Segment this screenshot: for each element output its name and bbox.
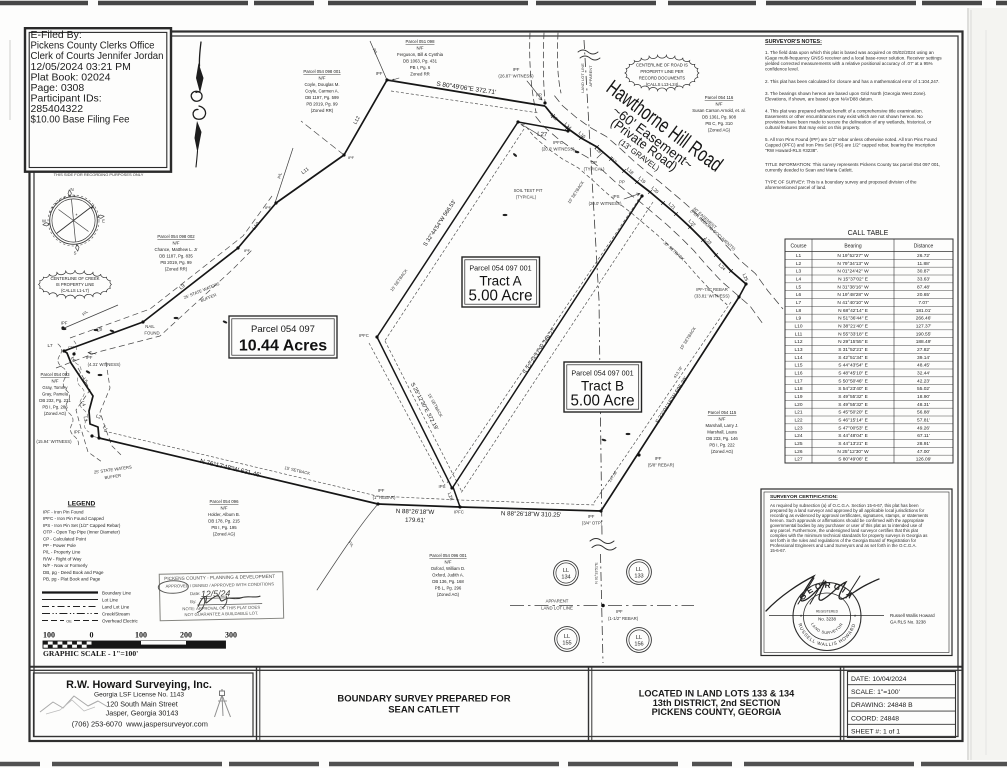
svg-text:FOUND: FOUND bbox=[144, 331, 159, 336]
svg-text:Elevations, if shown, are base: Elevations, if shown, are based upon NAV… bbox=[765, 97, 873, 102]
svg-text:PICKENS COUNTY, GEORGIA: PICKENS COUNTY, GEORGIA bbox=[652, 707, 782, 717]
svg-text:DB 178, Pg. 215: DB 178, Pg. 215 bbox=[208, 519, 240, 524]
svg-text:S 80°49'06" E: S 80°49'06" E bbox=[838, 457, 868, 463]
svg-text:Creek/Stream: Creek/Stream bbox=[102, 612, 130, 617]
svg-text:PB C, Pg. 310: PB C, Pg. 310 bbox=[705, 121, 733, 126]
svg-text:*: * bbox=[76, 214, 78, 220]
svg-text:L19: L19 bbox=[794, 394, 802, 400]
svg-text:R.W. Howard Surveying, Inc.: R.W. Howard Surveying, Inc. bbox=[66, 679, 212, 691]
svg-text:48.45': 48.45' bbox=[917, 363, 930, 369]
svg-text:Parcel 054 098 001: Parcel 054 098 001 bbox=[303, 69, 341, 74]
svg-text:S 44°48'04" E: S 44°48'04" E bbox=[838, 433, 868, 439]
svg-text:SCALE: 1"=100': SCALE: 1"=100' bbox=[851, 689, 900, 696]
svg-text:N 51°36'44" E: N 51°36'44" E bbox=[838, 316, 868, 322]
svg-text:(CALLS L1-L7): (CALLS L1-L7) bbox=[61, 288, 90, 293]
svg-text:179.61': 179.61' bbox=[405, 517, 425, 525]
svg-text:L7: L7 bbox=[47, 343, 53, 348]
svg-text:LAND LOT LINE: LAND LOT LINE bbox=[580, 63, 585, 93]
svg-text:N 88°26'18"W: N 88°26'18"W bbox=[396, 508, 435, 516]
svg-text:39.14': 39.14' bbox=[917, 355, 930, 361]
svg-text:Tract B: Tract B bbox=[581, 379, 624, 394]
svg-text:156: 156 bbox=[634, 642, 643, 648]
svg-text:L6: L6 bbox=[796, 292, 802, 298]
svg-text:L2: L2 bbox=[95, 413, 102, 420]
svg-text:N 41°40'10" W: N 41°40'10" W bbox=[837, 300, 869, 306]
svg-text:L12: L12 bbox=[794, 339, 802, 345]
svg-text:N 25°12'30" W: N 25°12'30" W bbox=[837, 449, 869, 455]
svg-text:THIS SIDE FOR RECORDING PURPOS: THIS SIDE FOR RECORDING PURPOSES ONLY bbox=[54, 172, 144, 177]
svg-text:PP - Power Pole: PP - Power Pole bbox=[43, 543, 76, 548]
svg-text:RECORD DOCUMENTS: RECORD DOCUMENTS bbox=[639, 76, 686, 81]
svg-text:Zoned RR: Zoned RR bbox=[410, 72, 430, 77]
svg-text:L11: L11 bbox=[795, 331, 803, 337]
svg-text:87.48': 87.48' bbox=[917, 284, 930, 290]
svg-text:Chance, Matthew L. Jr: Chance, Matthew L. Jr bbox=[155, 247, 199, 252]
svg-text:DB 1063, Pg. 431: DB 1063, Pg. 431 bbox=[403, 59, 438, 64]
svg-text:Coyle, Douglas M.: Coyle, Douglas M. bbox=[304, 82, 339, 87]
svg-text:5.00 Acre: 5.00 Acre bbox=[469, 288, 533, 305]
svg-text:Tract A: Tract A bbox=[479, 274, 521, 289]
svg-text:L3: L3 bbox=[796, 269, 802, 275]
svg-text:55.02': 55.02' bbox=[917, 386, 930, 392]
svg-text:N 88°26'18"W 310.25': N 88°26'18"W 310.25' bbox=[501, 510, 562, 519]
svg-text:IPF: IPF bbox=[616, 609, 623, 614]
svg-text:30' SETBACK: 30' SETBACK bbox=[663, 240, 686, 261]
svg-text:42.23': 42.23' bbox=[917, 378, 930, 384]
svg-text:DB 232, Pg. 231: DB 232, Pg. 231 bbox=[39, 398, 71, 403]
svg-text:IPF: IPF bbox=[588, 514, 595, 519]
svg-text:7.07': 7.07' bbox=[918, 300, 928, 306]
svg-text:5.00 Acre: 5.00 Acre bbox=[571, 393, 635, 410]
svg-text:IPS: IPS bbox=[613, 194, 620, 199]
svg-text:L23: L23 bbox=[704, 236, 713, 245]
svg-text:PB I, Pg. 222: PB I, Pg. 222 bbox=[709, 443, 735, 448]
svg-text:(TYPICAL): (TYPICAL) bbox=[516, 195, 537, 200]
svg-text:(Zoned RR): (Zoned RR) bbox=[311, 108, 334, 113]
svg-text:IPF: IPF bbox=[655, 456, 662, 461]
svg-text:N 79°34'13" W: N 79°34'13" W bbox=[837, 261, 869, 267]
svg-text:Parcel 054 096 001: Parcel 054 096 001 bbox=[429, 553, 467, 558]
svg-text:S 49°55'32" E: S 49°55'32" E bbox=[838, 394, 868, 400]
svg-text:(Zoned AG): (Zoned AG) bbox=[437, 592, 460, 597]
svg-text:10.44 Acres: 10.44 Acres bbox=[239, 338, 327, 355]
svg-text:SOIL TEST PIT: SOIL TEST PIT bbox=[514, 188, 543, 193]
svg-text:P/L: P/L bbox=[347, 540, 355, 548]
svg-text:S 49°55'32" E: S 49°55'32" E bbox=[838, 402, 868, 408]
svg-text:300: 300 bbox=[225, 631, 237, 640]
svg-text:TYPE OF SURVEY: This is a bou: TYPE OF SURVEY: This is a boundary surve… bbox=[765, 180, 917, 185]
svg-text:PB L, Pg. 296: PB L, Pg. 296 bbox=[435, 586, 462, 591]
svg-text:S 45°50'20" E: S 45°50'20" E bbox=[838, 410, 868, 416]
svg-text:N 19°48'28" W: N 19°48'28" W bbox=[837, 292, 869, 298]
svg-text:L13: L13 bbox=[794, 347, 802, 353]
svg-text:S 31°52'21" E: S 31°52'21" E bbox=[838, 347, 868, 353]
svg-text:COORD: 24848: COORD: 24848 bbox=[851, 715, 899, 722]
svg-text:(Zoned RR): (Zoned RR) bbox=[165, 267, 188, 272]
svg-text:L8: L8 bbox=[796, 308, 802, 314]
svg-text:LAND LOT LINE: LAND LOT LINE bbox=[541, 606, 573, 611]
svg-text:E: E bbox=[102, 219, 105, 224]
svg-text:L22: L22 bbox=[794, 418, 802, 424]
svg-text:R/W - Right of Way: R/W - Right of Way bbox=[43, 556, 82, 561]
svg-text:PB 2019, Pg. 99: PB 2019, Pg. 99 bbox=[306, 102, 338, 107]
svg-text:56.88': 56.88' bbox=[917, 410, 930, 416]
svg-text:IPF: IPF bbox=[348, 155, 355, 160]
svg-text:IPF - Iron Pin Found: IPF - Iron Pin Found bbox=[43, 510, 84, 515]
svg-text:Parcel 051 098: Parcel 051 098 bbox=[406, 39, 436, 44]
svg-text:Jasper, Georgia 30143: Jasper, Georgia 30143 bbox=[106, 709, 179, 718]
svg-text:12/5/24: 12/5/24 bbox=[201, 588, 231, 599]
svg-text:2. This plat has been calculat: 2. This plat has been calculated for clo… bbox=[765, 79, 940, 84]
svg-text:L4: L4 bbox=[796, 277, 802, 283]
svg-text:NAIL: NAIL bbox=[145, 324, 155, 329]
svg-text:N/F - Now or Formerly: N/F - Now or Formerly bbox=[43, 563, 88, 568]
svg-text:120 South Main Street: 120 South Main Street bbox=[106, 700, 178, 709]
svg-text:GRAPHIC SCALE - 1"=100': GRAPHIC SCALE - 1"=100' bbox=[43, 649, 138, 658]
svg-text:PP: PP bbox=[536, 93, 542, 98]
svg-text:L3: L3 bbox=[83, 416, 88, 422]
svg-text:IPF: IPF bbox=[86, 355, 93, 360]
svg-text:P/L: P/L bbox=[81, 309, 89, 317]
svg-text:L26: L26 bbox=[794, 449, 802, 455]
svg-text:(5/8" REBAR): (5/8" REBAR) bbox=[648, 463, 675, 468]
svg-text:S 50°50'46" E: S 50°50'46" E bbox=[838, 378, 868, 384]
svg-text:S 46°15'14" E: S 46°15'14" E bbox=[838, 418, 868, 424]
svg-text:IPF: IPF bbox=[513, 67, 520, 72]
svg-text:Parcel 054 097 001: Parcel 054 097 001 bbox=[571, 369, 633, 378]
svg-text:L17: L17 bbox=[794, 378, 802, 384]
svg-text:L15: L15 bbox=[578, 130, 587, 139]
svg-text:(TYPICAL): (TYPICAL) bbox=[584, 167, 605, 172]
svg-text:provisions have been made to s: provisions have been made to secure the … bbox=[765, 120, 932, 125]
svg-text:Easements or other encumbrance: Easements or other encumbrances may exis… bbox=[765, 114, 923, 119]
svg-text:PB I, Pg. 6: PB I, Pg. 6 bbox=[410, 65, 431, 70]
svg-text:By:: By: bbox=[190, 599, 196, 604]
svg-text:N: N bbox=[70, 187, 73, 192]
svg-text:L10: L10 bbox=[794, 324, 802, 330]
svg-text:cultural features that may exi: cultural features that may exist on this… bbox=[765, 125, 860, 130]
svg-text:5. All Iron Pins Found (IPF) a: 5. All Iron Pins Found (IPF) are 1/2" re… bbox=[765, 137, 937, 142]
svg-text:Professional Engineers and Lan: Professional Engineers and Land Surveyor… bbox=[770, 543, 917, 548]
svg-text:181.01': 181.01' bbox=[916, 308, 932, 314]
svg-text:(1-1/2" REBAR): (1-1/2" REBAR) bbox=[608, 616, 639, 621]
svg-text:confidence level.: confidence level. bbox=[765, 67, 799, 72]
svg-text:IPFC: IPFC bbox=[553, 140, 563, 145]
svg-text:N 38°21'40" E: N 38°21'40" E bbox=[838, 324, 868, 330]
svg-text:3. The bearings shown hereon a: 3. The bearings shown hereon are based u… bbox=[765, 91, 926, 96]
svg-text:SURVEYOR'S NOTES:: SURVEYOR'S NOTES: bbox=[765, 39, 822, 45]
svg-text:L11: L11 bbox=[300, 166, 310, 176]
svg-text:L23: L23 bbox=[794, 425, 802, 431]
svg-text:413.78': 413.78' bbox=[672, 365, 683, 379]
svg-text:(20.0' WITNESS): (20.0' WITNESS) bbox=[589, 201, 622, 206]
svg-text:IPF: IPF bbox=[376, 71, 383, 76]
svg-text:LL: LL bbox=[636, 567, 642, 573]
svg-text:PB 2019, Pg. 99: PB 2019, Pg. 99 bbox=[160, 260, 192, 265]
svg-text:27.82': 27.82' bbox=[917, 347, 930, 353]
svg-text:DB 233, Pg. 146: DB 233, Pg. 146 bbox=[706, 436, 738, 441]
svg-text:190.55': 190.55' bbox=[916, 331, 932, 337]
svg-text:67.11': 67.11' bbox=[917, 433, 930, 439]
svg-text:133: 133 bbox=[634, 574, 643, 580]
svg-text:L12: L12 bbox=[353, 115, 362, 125]
svg-text:(26.87' WITNESS): (26.87' WITNESS) bbox=[498, 74, 534, 79]
svg-text:CALL TABLE: CALL TABLE bbox=[848, 230, 889, 237]
svg-text:Holder, Album B.: Holder, Album B. bbox=[208, 512, 240, 517]
svg-text:Distance: Distance bbox=[914, 244, 934, 250]
svg-text:CP: CP bbox=[591, 160, 597, 165]
svg-text:CENTERLINE OF CREEK: CENTERLINE OF CREEK bbox=[50, 276, 99, 281]
svg-text:N/F: N/F bbox=[173, 241, 180, 246]
svg-text:L21: L21 bbox=[794, 410, 802, 416]
svg-text:L16: L16 bbox=[594, 145, 603, 154]
svg-text:N/F: N/F bbox=[221, 506, 228, 511]
svg-text:L1: L1 bbox=[102, 425, 109, 432]
svg-text:N 55°33'18" E: N 55°33'18" E bbox=[838, 331, 868, 337]
svg-text:OE: OE bbox=[66, 620, 72, 624]
svg-text:IPF: IPF bbox=[74, 430, 81, 435]
svg-text:L2: L2 bbox=[796, 261, 802, 267]
svg-text:N/F: N/F bbox=[319, 76, 326, 81]
svg-text:Gray, Pamela: Gray, Pamela bbox=[42, 392, 69, 397]
svg-text:P/L - Property Line: P/L - Property Line bbox=[43, 550, 81, 555]
svg-text:15' SETBACK: 15' SETBACK bbox=[679, 326, 697, 351]
svg-text:15-6-67.: 15-6-67. bbox=[770, 548, 786, 553]
svg-text:L7: L7 bbox=[796, 300, 802, 306]
svg-text:Parcel 054 097 001: Parcel 054 097 001 bbox=[469, 264, 531, 273]
svg-text:L20: L20 bbox=[794, 402, 802, 408]
svg-text:IPF: IPF bbox=[244, 248, 251, 253]
svg-text:DB 1187, Pg. 835: DB 1187, Pg. 835 bbox=[159, 254, 193, 259]
svg-text:N 29°15'55" E: N 29°15'55" E bbox=[838, 339, 868, 345]
svg-text:(706) 253-6070: (706) 253-6070 bbox=[72, 720, 123, 729]
svg-text:L1: L1 bbox=[796, 253, 802, 259]
svg-text:15' SETBACK: 15' SETBACK bbox=[284, 465, 311, 476]
svg-text:www.jaspersurveyor.com: www.jaspersurveyor.com bbox=[125, 720, 208, 729]
svg-text:Boundary Line: Boundary Line bbox=[102, 591, 132, 596]
svg-text:REGISTERED: REGISTERED bbox=[816, 610, 839, 614]
svg-text:(CALLS L13-L24): (CALLS L13-L24) bbox=[646, 82, 679, 87]
svg-text:SURVEYOR CERTIFICATION:: SURVEYOR CERTIFICATION: bbox=[770, 494, 838, 500]
svg-text:IPFC: IPFC bbox=[359, 333, 369, 338]
svg-text:L24: L24 bbox=[794, 433, 802, 439]
svg-text:28.91': 28.91' bbox=[917, 441, 930, 447]
svg-text:Date:: Date: bbox=[190, 591, 201, 596]
svg-text:P/L: P/L bbox=[372, 47, 380, 55]
svg-text:Marshall, Laura: Marshall, Laura bbox=[707, 430, 737, 435]
svg-text:Marshall, Larry J.: Marshall, Larry J. bbox=[706, 423, 739, 428]
svg-text:Parcel 054 098 002: Parcel 054 098 002 bbox=[157, 234, 195, 239]
svg-text:BOUNDARY SURVEY PREPARED FOR: BOUNDARY SURVEY PREPARED FOR bbox=[337, 694, 510, 705]
svg-text:Lot Line: Lot Line bbox=[102, 598, 119, 603]
svg-text:4. This plat was prepared with: 4. This plat was prepared without benefi… bbox=[765, 109, 923, 114]
svg-text:Coyle, Carmen A.: Coyle, Carmen A. bbox=[305, 89, 339, 94]
svg-text:DB, pg - Deed Book and Page: DB, pg - Deed Book and Page bbox=[43, 570, 104, 575]
svg-text:L18: L18 bbox=[794, 386, 802, 392]
svg-text:26.72': 26.72' bbox=[917, 253, 930, 259]
svg-text:(4.31' WITNESS): (4.31' WITNESS) bbox=[88, 362, 121, 367]
svg-text:N/F: N/F bbox=[52, 379, 59, 384]
svg-text:57.81': 57.81' bbox=[917, 418, 930, 424]
svg-text:PP: PP bbox=[619, 180, 625, 185]
svg-text:PB I, Pg. 286: PB I, Pg. 286 bbox=[42, 405, 68, 410]
svg-text:LL: LL bbox=[564, 634, 570, 640]
svg-text:N/F: N/F bbox=[716, 102, 723, 107]
svg-text:"RW Howard-RLS #3238".: "RW Howard-RLS #3238". bbox=[765, 148, 818, 153]
svg-text:200: 200 bbox=[180, 631, 192, 640]
svg-text:S: S bbox=[74, 251, 77, 256]
svg-text:IPS - Iron Pin Set (1/2" Cappe: IPS - Iron Pin Set (1/2" Capped Rebar) bbox=[43, 523, 121, 528]
svg-text:(20.0' WITNESS): (20.0' WITNESS) bbox=[542, 147, 575, 152]
svg-text:No. 3238: No. 3238 bbox=[818, 617, 836, 622]
svg-text:IS PROPERTY LINE: IS PROPERTY LINE bbox=[56, 282, 95, 287]
svg-text:BUFFER: BUFFER bbox=[200, 292, 217, 303]
svg-text:IPF-7/8" REBAR: IPF-7/8" REBAR bbox=[696, 287, 728, 292]
svg-text:Oxford, William D.: Oxford, William D. bbox=[431, 566, 466, 571]
svg-text:Parcel 054 096: Parcel 054 096 bbox=[210, 499, 240, 504]
svg-text:100: 100 bbox=[43, 631, 55, 640]
svg-text:(Zoned AG): (Zoned AG) bbox=[708, 128, 731, 133]
svg-text:L26: L26 bbox=[446, 492, 454, 502]
svg-text:IPF: IPF bbox=[265, 205, 272, 210]
svg-text:SHEET #: 1 of 1: SHEET #: 1 of 1 bbox=[851, 729, 900, 736]
svg-text:Gray, Tommy: Gray, Tommy bbox=[42, 385, 68, 390]
svg-text:BUFFER: BUFFER bbox=[104, 473, 121, 480]
svg-text:15' SETBACK: 15' SETBACK bbox=[389, 268, 408, 292]
svg-text:S 48°45'10" E: S 48°45'10" E bbox=[838, 371, 868, 377]
svg-text:L15: L15 bbox=[794, 363, 802, 369]
svg-text:IPF: IPF bbox=[378, 488, 385, 493]
svg-text:Parcel 054 093: Parcel 054 093 bbox=[41, 372, 71, 377]
svg-text:IPF: IPF bbox=[61, 321, 68, 326]
svg-text:S 42°51'34" E: S 42°51'34" E bbox=[838, 355, 868, 361]
svg-text:N/F: N/F bbox=[719, 417, 726, 422]
svg-text:DB 1361, Pg. 908: DB 1361, Pg. 908 bbox=[702, 115, 737, 120]
svg-text:47.00': 47.00' bbox=[917, 449, 930, 455]
svg-text:PROPERTY LINE PER: PROPERTY LINE PER bbox=[640, 69, 683, 74]
svg-text:iGage multi-frequency GNSS rec: iGage multi-frequency GNSS receiver and … bbox=[765, 56, 942, 61]
svg-text:L27: L27 bbox=[794, 457, 802, 463]
svg-text:S 54°23'40" E: S 54°23'40" E bbox=[838, 386, 868, 392]
svg-text:(Zoned AG): (Zoned AG) bbox=[213, 532, 236, 537]
svg-text:Oxford, Judith A.: Oxford, Judith A. bbox=[432, 573, 464, 578]
svg-text:CENTERLINE OF ROAD IS: CENTERLINE OF ROAD IS bbox=[636, 63, 688, 68]
svg-text:CP - Calculated Point: CP - Calculated Point bbox=[43, 536, 87, 541]
svg-text:P/L: P/L bbox=[276, 171, 283, 179]
svg-text:IPFC - Iron Pin Found Capped: IPFC - Iron Pin Found Capped bbox=[43, 516, 104, 521]
svg-text:Georgia LSF License No. 1143: Georgia LSF License No. 1143 bbox=[94, 692, 184, 699]
svg-text:N 76°17'48"W 631.46': N 76°17'48"W 631.46' bbox=[199, 457, 262, 479]
svg-text:W: W bbox=[42, 219, 46, 224]
svg-text:S 47°00'53" E: S 47°00'53" E bbox=[838, 425, 868, 431]
svg-text:Land Lot Line: Land Lot Line bbox=[102, 605, 130, 610]
svg-text:L9: L9 bbox=[796, 316, 802, 322]
svg-text:PB I, Pg. 195: PB I, Pg. 195 bbox=[211, 525, 237, 530]
svg-text:PICKENS COUNTY - PLANNING & DE: PICKENS COUNTY - PLANNING & DEVELOPMENT bbox=[164, 574, 275, 581]
svg-text:DB 136, Pg. 168: DB 136, Pg. 168 bbox=[432, 579, 464, 584]
svg-text:N 68°42'14" E: N 68°42'14" E bbox=[838, 308, 868, 314]
svg-text:NOT GUARANTEE A BUILDABLE LOT.: NOT GUARANTEE A BUILDABLE LOT. bbox=[184, 611, 258, 618]
svg-text:L4: L4 bbox=[80, 400, 87, 407]
svg-text:N 19°52'27" W: N 19°52'27" W bbox=[837, 253, 869, 259]
svg-text:20.65': 20.65' bbox=[917, 292, 930, 298]
svg-text:(1" REBAR): (1" REBAR) bbox=[373, 495, 396, 500]
svg-text:30.87': 30.87' bbox=[917, 269, 930, 275]
svg-text:L14: L14 bbox=[564, 121, 573, 130]
svg-text:Overhead Electric: Overhead Electric bbox=[102, 619, 139, 624]
svg-text:N/F: N/F bbox=[445, 560, 452, 565]
svg-text:Parcel 054 097: Parcel 054 097 bbox=[251, 324, 315, 335]
svg-text:134: 134 bbox=[561, 575, 570, 581]
svg-text:11.88': 11.88' bbox=[917, 261, 930, 267]
svg-text:APPARENT: APPARENT bbox=[588, 65, 593, 87]
svg-text:Capped (IPFC) and Iron Pins Se: Capped (IPFC) and Iron Pins Set (IPS) ar… bbox=[765, 143, 936, 148]
svg-text:15' SETBACK: 15' SETBACK bbox=[566, 180, 585, 205]
svg-text:IPS: IPS bbox=[439, 484, 446, 489]
svg-text:Bearing: Bearing bbox=[844, 244, 861, 250]
svg-text:S 32°01'15"W 595.39': S 32°01'15"W 595.39' bbox=[655, 376, 689, 425]
svg-text:32.44': 32.44' bbox=[917, 371, 930, 377]
svg-text:Ferguson, Bill & Cynthia: Ferguson, Bill & Cynthia bbox=[397, 52, 444, 57]
svg-text:Parcel 054 116: Parcel 054 116 bbox=[705, 95, 734, 100]
svg-text:N 31°38'16" W: N 31°38'16" W bbox=[837, 284, 869, 290]
svg-text:L5: L5 bbox=[82, 377, 89, 384]
svg-text:(3/4" OTP): (3/4" OTP) bbox=[582, 521, 603, 526]
svg-text:(PER RECORD DOCUMENTS): (PER RECORD DOCUMENTS) bbox=[689, 208, 737, 252]
svg-text:Parcel 054 115: Parcel 054 115 bbox=[708, 410, 737, 415]
svg-text:IPFC: IPFC bbox=[454, 510, 464, 515]
svg-text:L16: L16 bbox=[794, 371, 802, 377]
svg-text:yielded corrected measurements: yielded corrected measurements with a re… bbox=[765, 61, 933, 66]
svg-text:L5: L5 bbox=[796, 284, 802, 290]
svg-text:(33.81' WITNESS): (33.81' WITNESS) bbox=[694, 294, 730, 299]
svg-text:DATE: 10/04/2024: DATE: 10/04/2024 bbox=[851, 676, 907, 683]
svg-text:L25: L25 bbox=[794, 441, 802, 447]
svg-text:100: 100 bbox=[135, 631, 147, 640]
svg-text:DRAWING: 24848 B: DRAWING: 24848 B bbox=[851, 702, 913, 709]
svg-text:S 44°13'21" E: S 44°13'21" E bbox=[838, 441, 868, 447]
svg-text:0: 0 bbox=[90, 631, 94, 640]
svg-text:LL: LL bbox=[563, 568, 569, 574]
svg-text:L21: L21 bbox=[668, 201, 677, 210]
svg-text:Susan Carson Arnold, et. al.: Susan Carson Arnold, et. al. bbox=[692, 108, 746, 113]
svg-text:aforementioned parcel of land.: aforementioned parcel of land. bbox=[765, 185, 826, 190]
svg-text:currently deeded to Sean and M: currently deeded to Sean and Maria Catle… bbox=[765, 168, 853, 173]
svg-text:(Zoned AG): (Zoned AG) bbox=[44, 411, 67, 416]
svg-text:LEGEND: LEGEND bbox=[68, 501, 96, 508]
svg-text:L14: L14 bbox=[794, 355, 802, 361]
svg-text:$10.00 Base Filing Fee: $10.00 Base Filing Fee bbox=[31, 113, 130, 125]
svg-text:Russell Wallis Howard: Russell Wallis Howard bbox=[890, 613, 935, 618]
svg-text:18.90': 18.90' bbox=[917, 394, 930, 400]
svg-text:APPARENT: APPARENT bbox=[546, 599, 569, 604]
svg-text:OTP - Open Top Pipe (Inner Dia: OTP - Open Top Pipe (Inner Diameter) bbox=[43, 530, 120, 535]
svg-text:N/F: N/F bbox=[417, 46, 424, 51]
svg-text:CP: CP bbox=[68, 345, 74, 350]
svg-text:(15.94' WITNESS): (15.94' WITNESS) bbox=[36, 439, 72, 444]
svg-text:SEAN CATLETT: SEAN CATLETT bbox=[388, 705, 460, 716]
svg-text:126.09': 126.09' bbox=[916, 457, 932, 463]
svg-text:TITLE INFORMATION: This surve: TITLE INFORMATION: This survey represent… bbox=[765, 162, 940, 167]
svg-text:155: 155 bbox=[562, 641, 571, 647]
svg-text:1. The field data upon which t: 1. The field data upon which this plat i… bbox=[765, 50, 934, 55]
svg-text:PB, pg - Plat Book and Page: PB, pg - Plat Book and Page bbox=[43, 577, 101, 582]
svg-text:S 32°23'37"W 789.27': S 32°23'37"W 789.27' bbox=[523, 327, 558, 376]
svg-text:N 01°24'42" W: N 01°24'42" W bbox=[837, 269, 869, 275]
svg-text:(Zoned AG): (Zoned AG) bbox=[711, 449, 734, 454]
svg-text:127.37': 127.37' bbox=[916, 324, 932, 330]
svg-text:188.49': 188.49' bbox=[916, 339, 932, 345]
